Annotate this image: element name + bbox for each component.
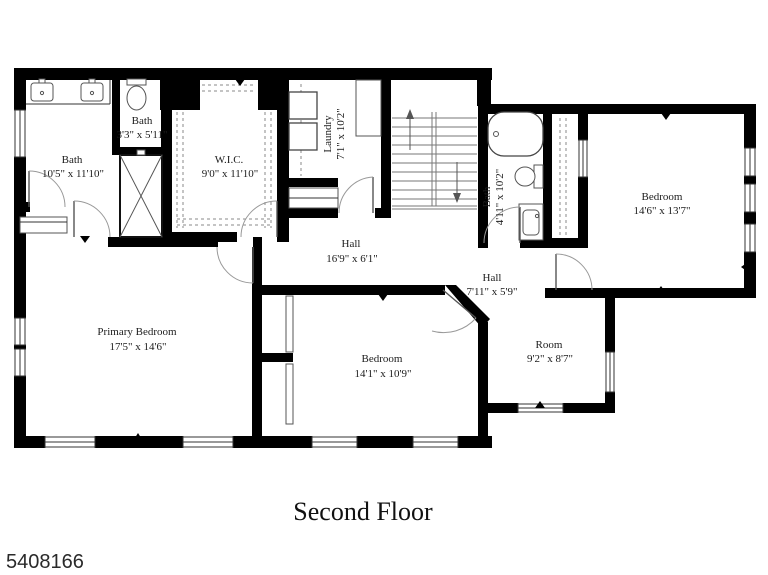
wall-ticks bbox=[80, 79, 748, 441]
room-label-room-name: Room bbox=[536, 339, 563, 351]
window bbox=[14, 110, 26, 157]
room-label-bedroom-right-dims: 14'6" x 13'7" bbox=[634, 205, 691, 217]
stair-divider bbox=[432, 112, 436, 206]
door-bedroom-right bbox=[556, 254, 592, 290]
window bbox=[413, 436, 458, 448]
walls bbox=[14, 68, 756, 448]
window bbox=[605, 352, 615, 392]
window bbox=[744, 184, 756, 212]
floor-plan: Bath 10'5" x 11'10" Bath 3'3" x 5'11" W.… bbox=[0, 0, 768, 575]
room-label-hall-small-name: Hall bbox=[483, 272, 502, 284]
window bbox=[45, 436, 95, 448]
window bbox=[14, 318, 26, 345]
washer-dryer-fixture bbox=[289, 92, 317, 150]
staircase bbox=[392, 109, 477, 209]
room-label-bath-main-dims: 10'5" x 11'10" bbox=[42, 168, 104, 180]
window bbox=[744, 224, 756, 252]
door-wic bbox=[241, 201, 277, 237]
linen-closet bbox=[20, 217, 67, 233]
hall-closet-rod bbox=[560, 118, 566, 238]
room-label-bedroom-right-name: Bedroom bbox=[642, 191, 683, 203]
faucet-icon bbox=[89, 79, 95, 83]
bathtub-fixture bbox=[488, 112, 543, 156]
room-label-bath-small-name: Bath bbox=[132, 115, 153, 127]
faucet-icon bbox=[535, 214, 538, 217]
door-primary-bedroom bbox=[217, 247, 253, 283]
window bbox=[14, 349, 26, 376]
room-label-wic-name: W.I.C. bbox=[215, 154, 244, 166]
room-label-hall-small-dims: 7'11" x 5'9" bbox=[466, 286, 517, 298]
room-label-hall-main-dims: 16'9" x 6'1" bbox=[326, 253, 377, 265]
room-label-bath-hall-dims: 4'11" x 10'2" bbox=[494, 169, 506, 226]
floor-title: Second Floor bbox=[293, 497, 433, 526]
room-label-primary-bedroom-dims: 17'5" x 14'6" bbox=[110, 341, 167, 353]
room-label-room-dims: 9'2" x 8'7" bbox=[527, 353, 573, 365]
shower-fixture bbox=[120, 150, 162, 237]
double-sink-vanity bbox=[26, 79, 110, 104]
toilet-fixture bbox=[127, 79, 146, 110]
room-label-wic-dims: 9'0" x 11'10" bbox=[202, 168, 259, 180]
door-bath-vestibule bbox=[74, 201, 110, 237]
room-label-hall-main-name: Hall bbox=[342, 238, 361, 250]
laundry-counter bbox=[356, 80, 381, 136]
room-label-primary-bedroom-name: Primary Bedroom bbox=[97, 326, 177, 338]
room-label-bedroom-middle-dims: 14'1" x 10'9" bbox=[355, 368, 412, 380]
room-label-bedroom-middle-name: Bedroom bbox=[362, 353, 403, 365]
room-label-laundry-dims: 7'1" x 10'2" bbox=[335, 108, 347, 159]
window bbox=[744, 148, 756, 176]
room-label-laundry-name: Laundry bbox=[322, 115, 334, 153]
stairs-up-arrow bbox=[406, 109, 414, 150]
room-label-bath-main-name: Bath bbox=[62, 154, 83, 166]
stairs-down-arrow bbox=[453, 162, 461, 203]
tub-faucet-icon bbox=[494, 132, 499, 137]
faucet-icon bbox=[39, 79, 45, 83]
window bbox=[183, 436, 233, 448]
shower-valve-icon bbox=[137, 150, 145, 155]
room-label-bath-hall-name: Bath bbox=[481, 186, 493, 207]
toilet-fixture bbox=[515, 165, 543, 188]
window bbox=[312, 436, 357, 448]
room-label-bath-small-dims: 3'3" x 5'11" bbox=[116, 129, 167, 141]
hall-closet-shelf bbox=[289, 188, 338, 208]
closet-door bbox=[578, 140, 588, 177]
stair-landing-edge bbox=[392, 206, 477, 209]
listing-id: 5408166 bbox=[6, 551, 84, 573]
sink-vanity-fixture bbox=[519, 204, 543, 240]
door-laundry bbox=[339, 177, 373, 213]
